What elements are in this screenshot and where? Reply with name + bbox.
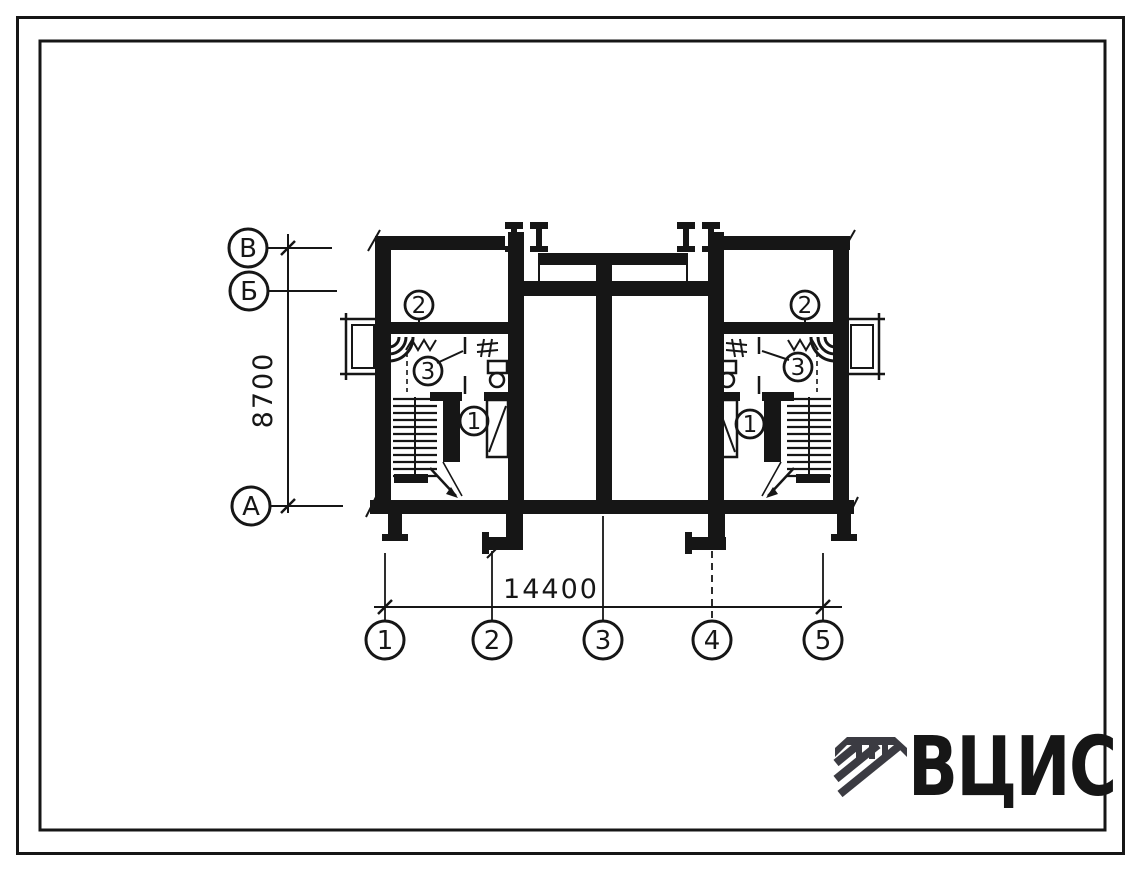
- chimney-3: [677, 222, 695, 252]
- axis-marker-3: 3: [584, 621, 622, 659]
- chimney-2: [530, 222, 548, 252]
- porch-left-steps: [352, 325, 374, 368]
- stair-left-landing: [394, 474, 428, 483]
- wall-room2-right: [724, 322, 841, 334]
- foot-axis4-arm: [691, 537, 726, 550]
- room-label: 1: [743, 412, 758, 438]
- foot-axis2-flange: [482, 532, 489, 554]
- axis-label: 2: [484, 626, 501, 656]
- room-label: 2: [412, 293, 427, 319]
- right-unit-interior: [716, 337, 831, 498]
- axis-label: 1: [377, 626, 394, 656]
- room-label: 3: [791, 355, 806, 381]
- radiator-left: [477, 339, 498, 357]
- wall-ledge: [538, 253, 688, 265]
- dim-value-horizontal: 14400: [503, 574, 599, 605]
- wall-bottom: [370, 500, 854, 514]
- stair-newel-right: [764, 392, 781, 462]
- foot-axis4-flange: [685, 532, 692, 554]
- room-marker-right-2: 2: [791, 291, 819, 324]
- bathtub-left-diagonal: [489, 406, 506, 452]
- logo-emblem-icon: [835, 737, 907, 794]
- room-label: 2: [798, 293, 813, 319]
- wall-center: [596, 258, 612, 514]
- wc-cistern-left: [488, 361, 507, 373]
- chimney-stacks: [505, 222, 720, 252]
- room-label: 3: [421, 359, 436, 385]
- foot-axis5-flange: [831, 534, 857, 541]
- foot-axis1-flange: [382, 534, 408, 541]
- axis-marker-4: 4: [693, 621, 731, 659]
- wall-top-right-unit: [723, 236, 850, 250]
- door-swing-right: [811, 337, 835, 361]
- wall-middle-top: [508, 281, 724, 296]
- room-marker-right-1: 1: [736, 410, 764, 438]
- axis-label: 4: [704, 626, 721, 656]
- logo: ВЦИС: [835, 719, 1116, 815]
- radiator-right: [726, 339, 747, 357]
- axis-marker-a: А: [232, 487, 270, 525]
- stair-right-landing: [796, 474, 830, 483]
- drawing-sheet: 2 3 1 2 3 1: [0, 0, 1139, 869]
- axis-label: В: [239, 234, 257, 264]
- axis-label: А: [242, 492, 260, 522]
- wall-top-left-unit: [375, 236, 505, 250]
- wall-party-left: [508, 232, 524, 514]
- left-axis-column: В Б А 8700: [229, 229, 343, 525]
- foot-axis2-arm: [488, 537, 523, 550]
- bottom-axis-row: 14400 1 2 3 4 5: [366, 516, 842, 659]
- door-swing-left: [389, 337, 413, 361]
- dim-value-vertical: 8700: [248, 352, 279, 429]
- partition-south-left-b: [484, 392, 508, 401]
- floor-plan-drawing: 2 3 1 2 3 1: [0, 0, 1139, 869]
- room-marker-right-3: 3: [762, 351, 812, 381]
- axis-marker-5: 5: [804, 621, 842, 659]
- axis-marker-2: 2: [473, 621, 511, 659]
- room-marker-left-1: 1: [460, 407, 488, 435]
- foundation-feet: [382, 514, 857, 554]
- partition-south-right-b: [716, 392, 740, 401]
- inner-frame: [40, 41, 1105, 830]
- room-label: 1: [467, 409, 482, 435]
- room-marker-left-3: 3: [414, 351, 463, 385]
- axis-marker-v: В: [229, 229, 267, 267]
- axis-marker-1: 1: [366, 621, 404, 659]
- left-unit-interior: [393, 337, 508, 498]
- porch-right-steps: [851, 325, 873, 368]
- axis-label: 5: [815, 626, 832, 656]
- foot-axis1: [388, 514, 402, 537]
- axis-label: Б: [240, 277, 258, 307]
- wc-pan-left: [490, 373, 504, 387]
- wall-room2-left: [383, 322, 508, 334]
- axis-marker-b: Б: [230, 272, 268, 310]
- logo-text: ВЦИС: [908, 719, 1116, 815]
- room-marker-left-2: 2: [405, 291, 433, 324]
- foot-axis5: [837, 514, 851, 537]
- stair-newel-left: [443, 392, 460, 462]
- axis-label: 3: [595, 626, 612, 656]
